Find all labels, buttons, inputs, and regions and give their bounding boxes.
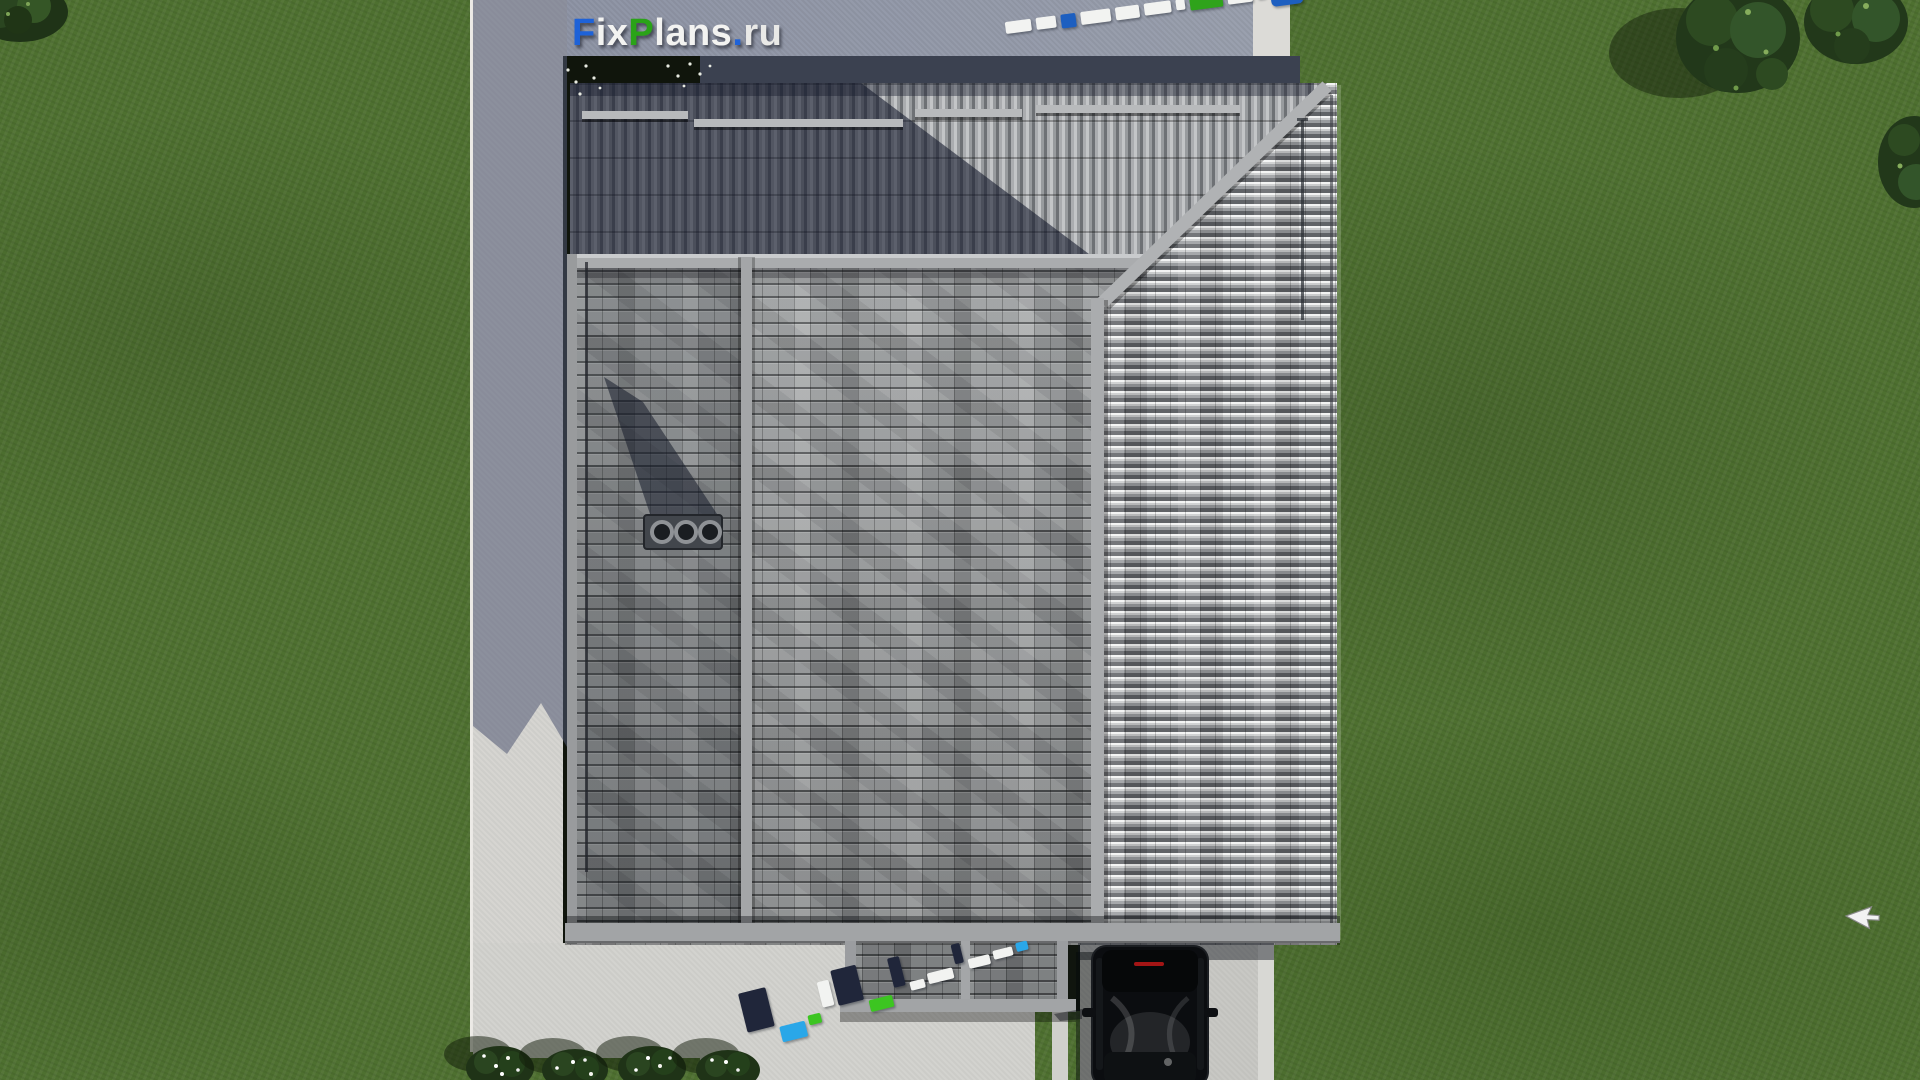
chimney-vents [650,520,722,544]
roof-left-edge-bar [567,254,577,944]
watermark-block [1115,4,1140,20]
vertical-ridge-bar [1091,298,1104,940]
watermark-block [1060,13,1077,29]
watermark-block [967,954,991,969]
right-gutter-line [1330,95,1333,935]
watermark-block [1080,8,1111,25]
section-divider-bar [741,257,752,940]
watermark-block [1175,0,1185,11]
watermark-block [1143,0,1171,15]
aerial-render-scene: FixPlans.ru [0,0,1920,1080]
flower-bushes-bottom [444,1036,760,1080]
roof-grass-edge [1337,85,1341,940]
watermark-block [1189,0,1223,11]
watermark-block [830,965,864,1006]
bottom-eave-shadow [565,916,1340,924]
section-divider-shadow-l [738,257,741,940]
watermark-block [1035,15,1056,30]
tree-top-right-1 [1609,0,1800,98]
upper-eave-shadow [570,83,1314,96]
chimney-shadow [604,377,719,517]
hip-ridge-shadow [1107,92,1330,308]
tree-top-right-2 [1804,0,1908,64]
section-divider-shadow-r [752,257,755,940]
bush-top-left [0,0,68,42]
right-downpipe [1301,120,1304,320]
watermark-block [1005,19,1032,34]
logo-letter: . [732,12,743,54]
left-downpipe [585,262,588,872]
main-ridge-shadow [570,268,1147,278]
watermark-block [1015,940,1029,952]
car-mirror-right [1204,1008,1218,1017]
house-shadow-on-path [473,0,567,754]
watermark-block [868,995,894,1012]
site-logo: FixPlans.ru [572,12,782,55]
logo-letter: F [572,12,596,54]
logo-letter: P [628,12,654,54]
scene-overlay [0,0,1920,1080]
watermark-block [1227,0,1253,5]
mouse-cursor-icon[interactable] [1846,898,1883,930]
black-car [1054,946,1218,1080]
car-left-sill [1096,958,1103,1070]
watermark-block [807,1013,822,1026]
watermark-block [909,978,926,990]
car-mirror-left [1082,1008,1096,1017]
logo-letter: lans [654,12,732,54]
car-windshield [1104,1052,1196,1080]
watermark-block [927,967,955,984]
logo-letter: ru [743,12,782,54]
right-downpipe-cap [1297,118,1308,121]
car-rear-glass [1102,950,1198,992]
car-right-sill [1197,958,1204,1070]
watermark-block [950,943,964,965]
logo-letter: ix [596,12,629,54]
vertical-ridge-shadow [1104,300,1108,940]
car-reflection [1164,1058,1172,1066]
watermark-block [817,980,835,1008]
main-ridge-highlight [570,254,1147,258]
car-brake-light [1134,962,1164,966]
watermark-block [887,956,906,988]
watermark-block [992,946,1014,960]
bush-right-edge [1878,116,1920,208]
hip-ridge-bar [1102,86,1327,303]
